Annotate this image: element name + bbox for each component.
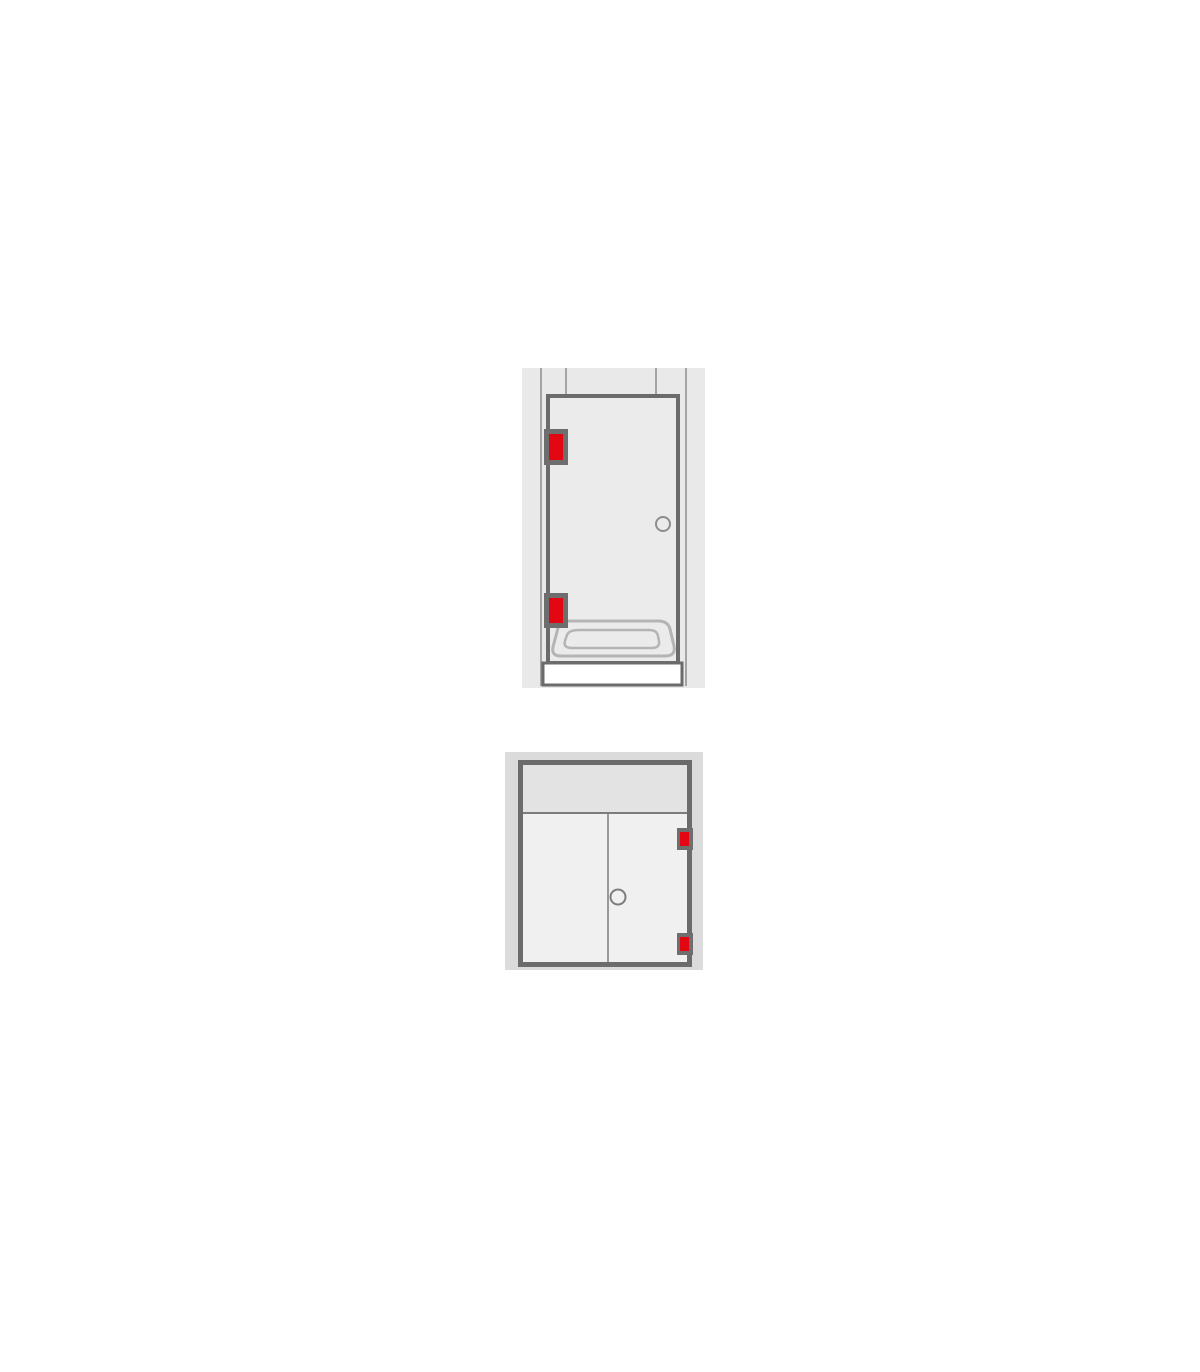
knob-handle-icon — [611, 890, 626, 905]
glass-door-diagram-svg — [505, 752, 703, 970]
hinge-red-pad — [549, 598, 563, 623]
hinge-icon-bottom — [544, 593, 568, 628]
hinge-red-pad — [680, 832, 689, 846]
glass-door-with-transom-diagram — [505, 752, 703, 970]
hinge-icon-top — [544, 429, 568, 465]
hinge-red-pad — [680, 937, 689, 951]
knob-handle-icon — [656, 517, 670, 531]
hinge-icon-top — [677, 828, 693, 850]
shower-door-diagram-svg — [522, 368, 705, 688]
hinge-red-pad — [549, 434, 563, 460]
page-canvas — [0, 0, 1200, 1372]
door-leaf-left — [518, 813, 608, 967]
hinge-icon-bottom — [677, 933, 693, 955]
shower-tray-front-panel — [543, 663, 682, 685]
transom-panel — [518, 760, 692, 813]
shower-door-in-niche-diagram — [522, 368, 705, 688]
